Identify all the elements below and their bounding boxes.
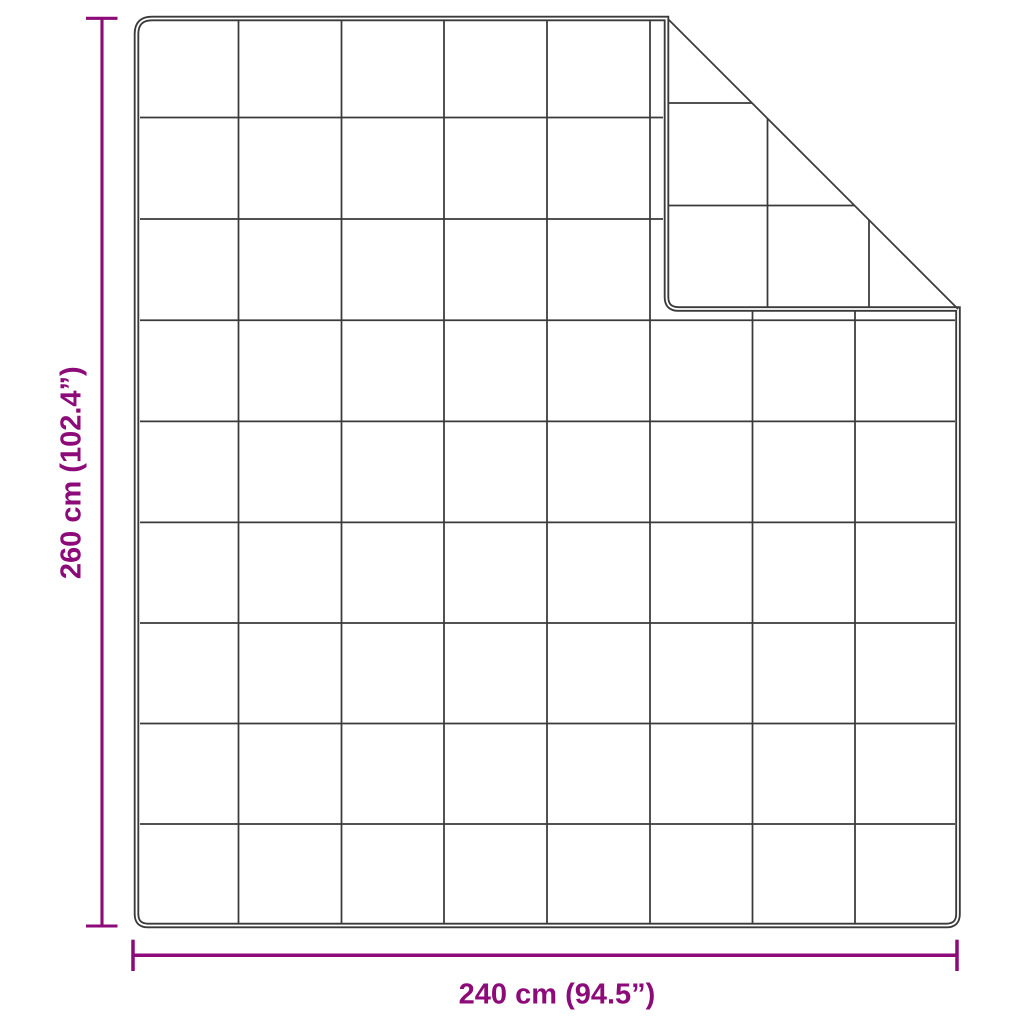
svg-text:260 cm (102.4”): 260 cm (102.4”) (56, 366, 88, 579)
svg-text:240 cm (94.5”): 240 cm (94.5”) (459, 979, 656, 1011)
